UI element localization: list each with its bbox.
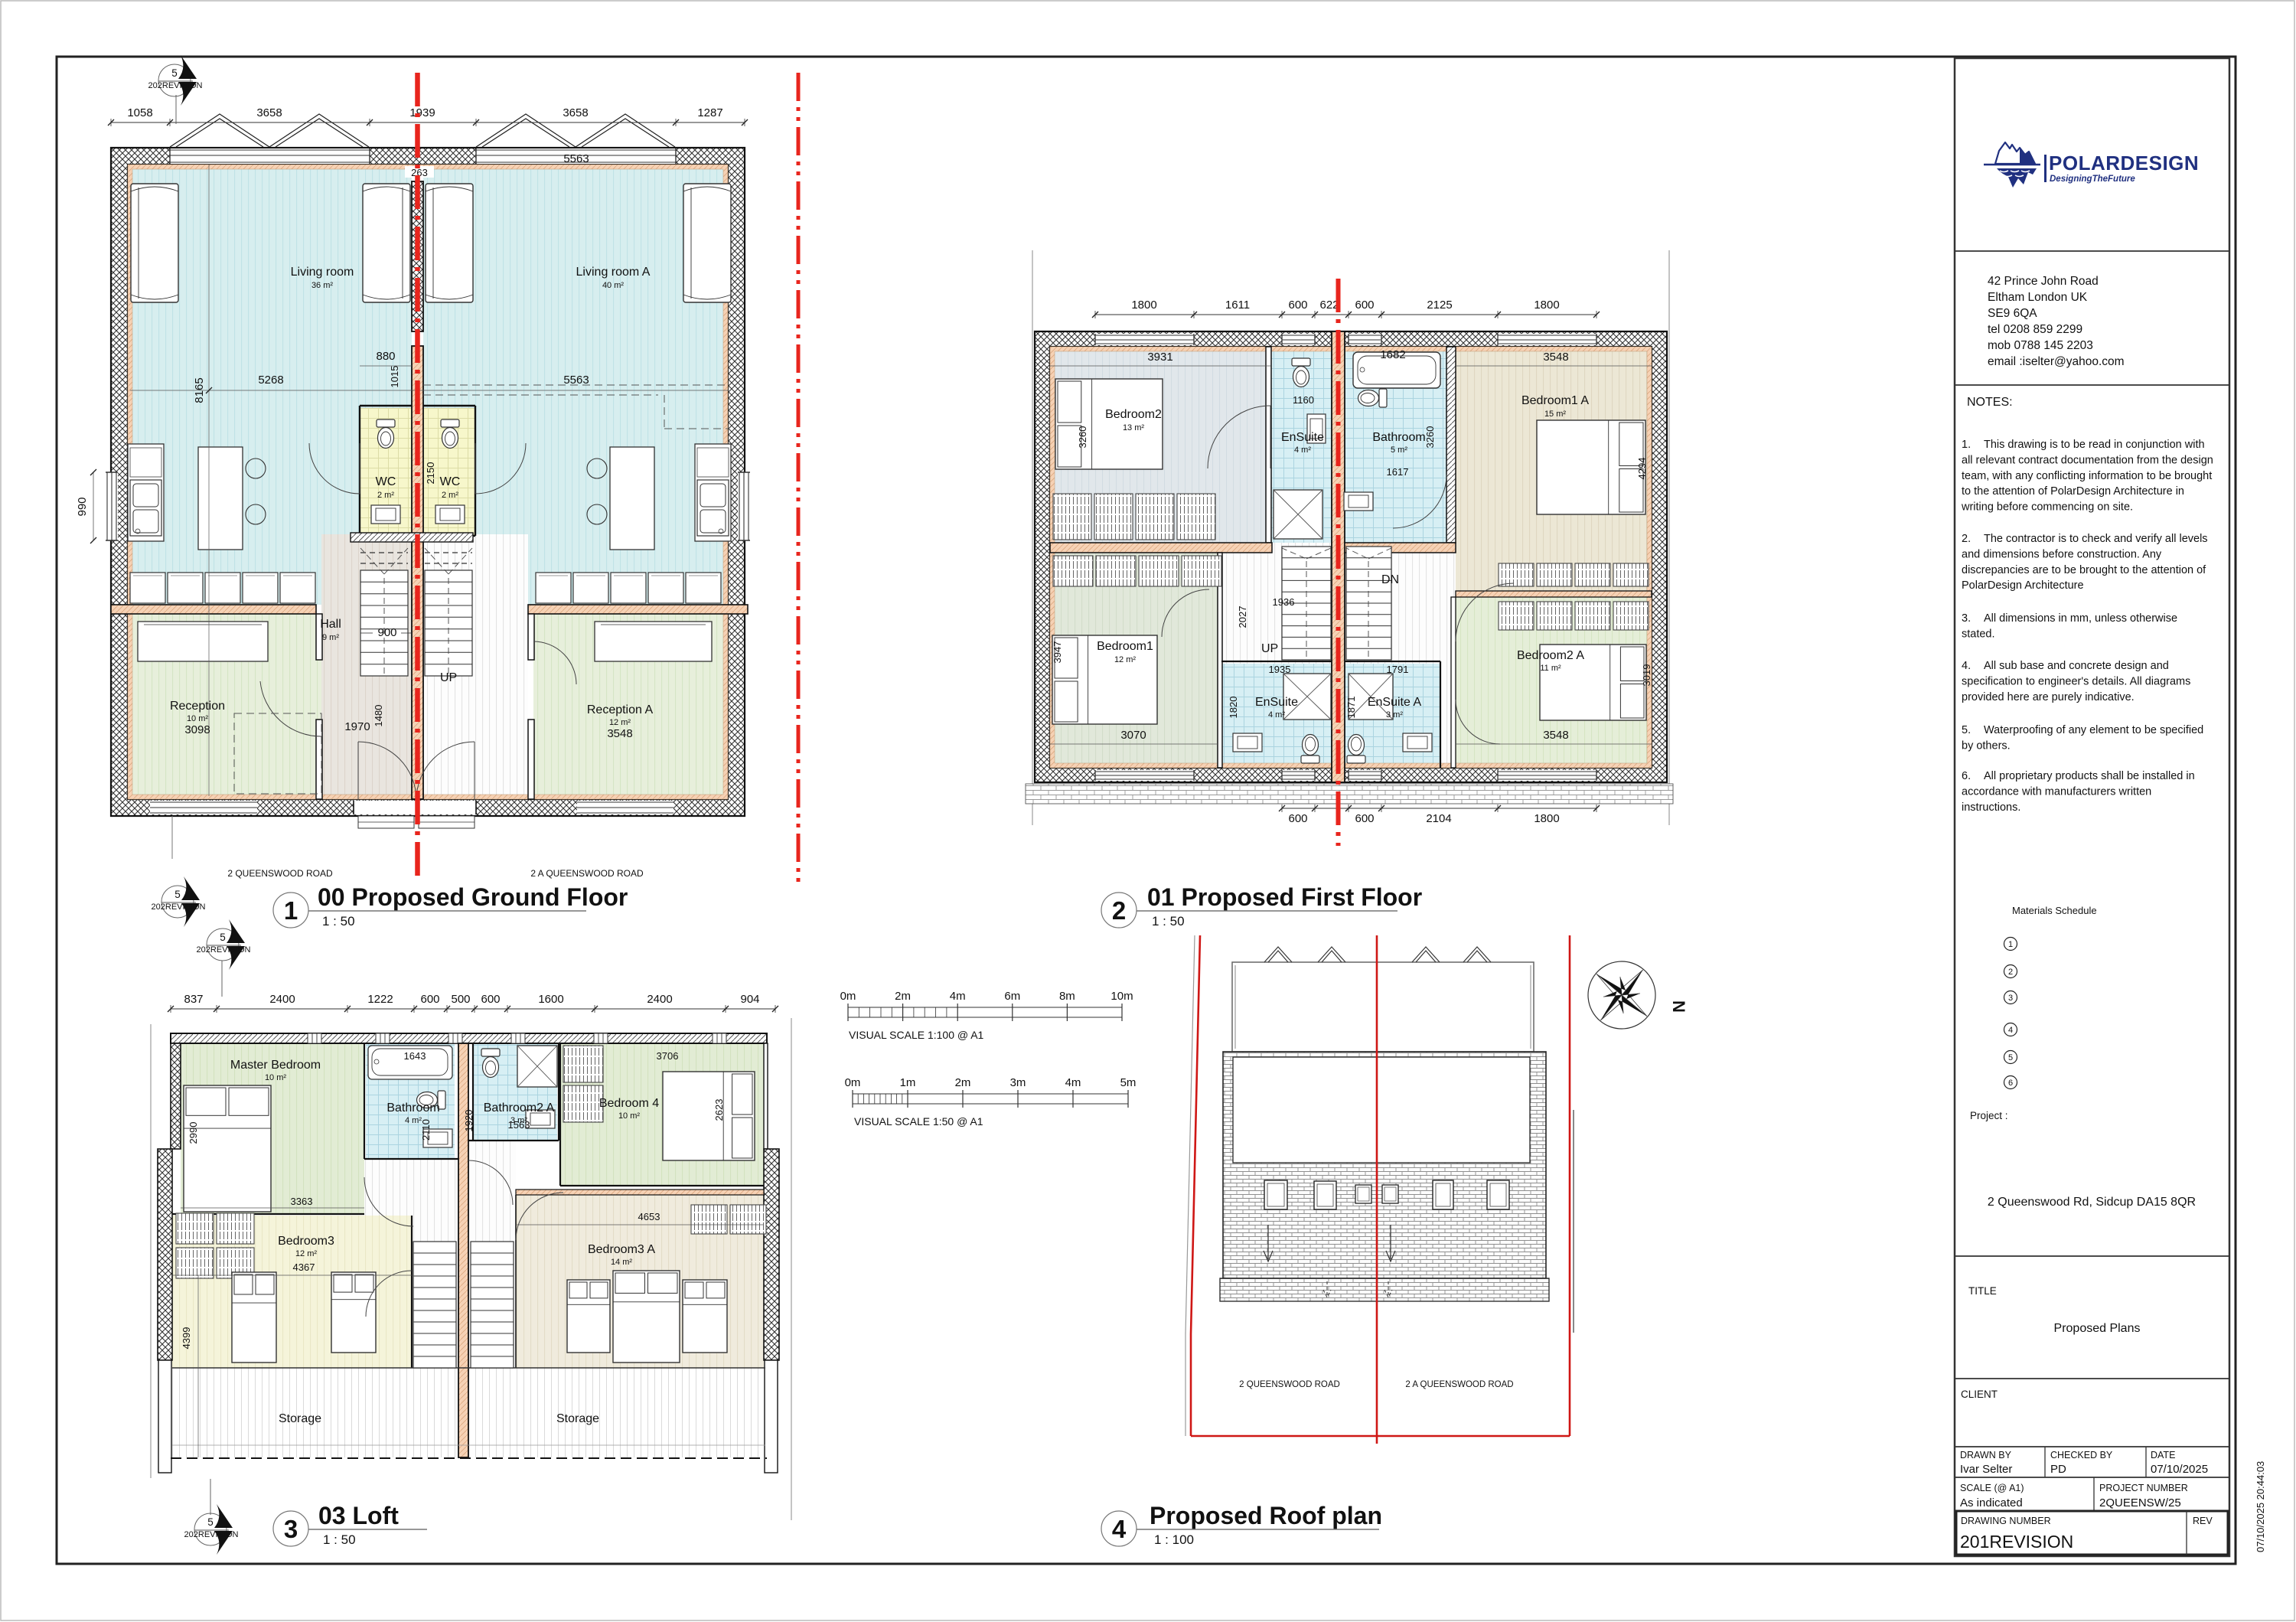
- svg-text:DRAWING NUMBER: DRAWING NUMBER: [1961, 1516, 2051, 1526]
- svg-text:3658: 3658: [563, 106, 588, 119]
- svg-text:2400: 2400: [647, 993, 672, 1006]
- svg-text:by others.: by others.: [1962, 739, 2011, 752]
- svg-text:Bedroom 4: Bedroom 4: [599, 1097, 659, 1110]
- svg-text:5 m²: 5 m²: [1391, 445, 1407, 455]
- svg-text:CLIENT: CLIENT: [1961, 1389, 1998, 1400]
- svg-text:10 m²: 10 m²: [187, 714, 208, 723]
- svg-text:writing before commencing on s: writing before commencing on site.: [1961, 501, 2133, 514]
- svg-text:3947: 3947: [1052, 641, 1063, 664]
- svg-text:Reception: Reception: [170, 700, 225, 713]
- svg-text:40 m²: 40 m²: [602, 281, 624, 290]
- svg-text:All dimensions in mm, unless o: All dimensions in mm, unless otherwise: [1984, 612, 2177, 625]
- svg-text:5: 5: [2008, 1053, 2013, 1062]
- svg-text:4399: 4399: [181, 1327, 192, 1349]
- svg-text:1: 1: [2008, 940, 2013, 949]
- svg-text:and dimensions before construc: and dimensions before construction. Any: [1962, 548, 2162, 560]
- svg-text:4: 4: [2008, 1026, 2013, 1035]
- svg-text:Proposed Plans: Proposed Plans: [2054, 1322, 2141, 1335]
- svg-text:1 : 50: 1 : 50: [323, 1532, 356, 1547]
- svg-text:Bathroom: Bathroom: [386, 1101, 439, 1115]
- svg-text:4 m²: 4 m²: [1268, 710, 1285, 720]
- svg-text:POLARDESIGN: POLARDESIGN: [2049, 152, 2199, 175]
- svg-text:3.: 3.: [1962, 612, 1971, 625]
- svg-text:Waterproofing of any element t: Waterproofing of any element to be speci…: [1984, 724, 2203, 736]
- svg-text:Ivar Selter: Ivar Selter: [1960, 1463, 2012, 1476]
- svg-text:6.: 6.: [1962, 770, 1971, 782]
- svg-text:880: 880: [376, 350, 395, 363]
- svg-text:3260: 3260: [1077, 426, 1088, 449]
- svg-text:SCALE (@ A1): SCALE (@ A1): [1960, 1483, 2024, 1493]
- svg-text:1: 1: [284, 896, 298, 925]
- svg-text:CHECKED BY: CHECKED BY: [2050, 1450, 2113, 1460]
- svg-text:3019: 3019: [1641, 664, 1652, 687]
- svg-text:11 m²: 11 m²: [1540, 664, 1561, 673]
- svg-text:2623: 2623: [713, 1099, 725, 1121]
- svg-text:01 Proposed First Floor: 01 Proposed First Floor: [1147, 883, 1422, 911]
- svg-text:Proposed Roof plan: Proposed Roof plan: [1150, 1502, 1382, 1529]
- svg-text:5m: 5m: [1120, 1076, 1137, 1089]
- svg-text:2125: 2125: [1427, 299, 1452, 312]
- svg-text:tel 0208 859 2299: tel 0208 859 2299: [1988, 323, 2082, 336]
- svg-text:Bedroom3 A: Bedroom3 A: [588, 1243, 655, 1256]
- svg-text:600: 600: [420, 993, 439, 1006]
- svg-text:07/10/2025 20:44:03: 07/10/2025 20:44:03: [2255, 1461, 2266, 1552]
- svg-text:Storage: Storage: [279, 1412, 321, 1425]
- svg-text:3260: 3260: [1424, 426, 1436, 449]
- svg-text:4653: 4653: [638, 1211, 660, 1222]
- svg-text:All sub base and concrete desi: All sub base and concrete design and: [1984, 660, 2169, 672]
- svg-text:1643: 1643: [404, 1050, 426, 1062]
- svg-text:202REVISION: 202REVISION: [197, 945, 251, 955]
- svg-text:VISUAL SCALE 1:100 @ A1: VISUAL SCALE 1:100 @ A1: [849, 1029, 984, 1041]
- svg-text:5563: 5563: [563, 374, 589, 387]
- svg-text:1970: 1970: [344, 720, 370, 733]
- svg-text:This drawing is to be read in: This drawing is to be read in conjunctio…: [1984, 439, 2205, 451]
- svg-text:DN: DN: [1381, 573, 1399, 586]
- svg-text:NOTES:: NOTES:: [1967, 396, 2013, 409]
- svg-text:5.: 5.: [1962, 724, 1971, 736]
- svg-text:1800: 1800: [1534, 812, 1559, 825]
- svg-text:6: 6: [2008, 1079, 2013, 1088]
- svg-text:2 QUEENSWOOD ROAD: 2 QUEENSWOOD ROAD: [1239, 1380, 1340, 1389]
- svg-text:Storage: Storage: [556, 1412, 599, 1425]
- svg-text:2150: 2150: [425, 462, 436, 485]
- svg-text:10 m²: 10 m²: [265, 1073, 286, 1082]
- svg-text:12 m²: 12 m²: [1114, 655, 1136, 664]
- svg-text:4294: 4294: [1636, 458, 1648, 480]
- svg-text:1287: 1287: [697, 106, 722, 119]
- svg-text:3548: 3548: [1543, 729, 1568, 742]
- svg-text:4m: 4m: [950, 990, 966, 1003]
- svg-text:14 m²: 14 m²: [611, 1258, 632, 1267]
- svg-text:provided here are purely indic: provided here are purely indicative.: [1962, 691, 2135, 703]
- svg-text:202REVISION: 202REVISION: [184, 1530, 239, 1539]
- svg-text:1820: 1820: [1228, 697, 1239, 719]
- svg-text:2.: 2.: [1962, 533, 1971, 545]
- svg-text:5563: 5563: [563, 152, 589, 165]
- svg-text:3: 3: [2008, 994, 2013, 1003]
- svg-text:990: 990: [76, 497, 89, 516]
- svg-text:8165: 8165: [193, 377, 206, 403]
- svg-text:2m: 2m: [895, 990, 911, 1003]
- svg-text:EnSuite A: EnSuite A: [1368, 696, 1422, 709]
- svg-text:201REVISION: 201REVISION: [1960, 1532, 2073, 1552]
- svg-text:Bedroom1 A: Bedroom1 A: [1521, 394, 1589, 407]
- svg-text:N: N: [1669, 1000, 1688, 1013]
- svg-text:WC: WC: [440, 475, 461, 488]
- svg-text:2104: 2104: [1426, 812, 1451, 825]
- svg-text:team, with any conflicting inf: team, with any conflicting information t…: [1962, 470, 2212, 482]
- svg-text:1 : 100: 1 : 100: [1154, 1532, 1194, 1547]
- svg-text:0m: 0m: [845, 1076, 861, 1089]
- svg-text:1935: 1935: [1269, 664, 1291, 675]
- svg-text:EnSuite: EnSuite: [1281, 431, 1324, 444]
- svg-text:10m: 10m: [1110, 990, 1133, 1003]
- svg-text:2 Queenswood Rd, Sidcup DA15 8: 2 Queenswood Rd, Sidcup DA15 8QR: [1988, 1196, 2196, 1209]
- svg-text:5: 5: [171, 67, 178, 79]
- svg-text:2: 2: [2008, 968, 2013, 977]
- svg-text:3548: 3548: [1543, 351, 1568, 364]
- svg-text:discrepancies are to be brough: discrepancies are to be brought to the a…: [1962, 564, 2206, 576]
- svg-text:REV: REV: [2193, 1516, 2213, 1526]
- svg-text:00 Proposed Ground Floor: 00 Proposed Ground Floor: [318, 883, 628, 911]
- svg-text:42 Prince John Road: 42 Prince John Road: [1988, 275, 2099, 288]
- svg-text:1920: 1920: [463, 1110, 475, 1132]
- svg-text:4 m²: 4 m²: [405, 1116, 422, 1125]
- svg-text:4: 4: [1112, 1515, 1127, 1543]
- svg-text:WC: WC: [376, 475, 396, 488]
- svg-text:SE9 6QA: SE9 6QA: [1988, 307, 2037, 320]
- svg-text:Bathroom2 A: Bathroom2 A: [484, 1101, 555, 1115]
- svg-text:1800: 1800: [1131, 299, 1156, 312]
- svg-text:3548: 3548: [607, 727, 632, 740]
- svg-text:3658: 3658: [256, 106, 282, 119]
- svg-text:4 m²: 4 m²: [1294, 445, 1311, 455]
- svg-text:0m: 0m: [840, 990, 856, 1003]
- svg-text:2990: 2990: [188, 1122, 199, 1144]
- svg-text:9 m²: 9 m²: [322, 633, 339, 642]
- svg-text:As indicated: As indicated: [1960, 1496, 2023, 1509]
- svg-text:8m: 8m: [1059, 990, 1075, 1003]
- svg-text:1222: 1222: [367, 993, 393, 1006]
- svg-text:12 m²: 12 m²: [295, 1249, 317, 1258]
- svg-text:DRAWN BY: DRAWN BY: [1960, 1450, 2012, 1460]
- svg-text:The contractor is to check and: The contractor is to check and verify al…: [1984, 533, 2208, 545]
- svg-text:email :iselter@yahoo.com: email :iselter@yahoo.com: [1988, 355, 2125, 368]
- svg-text:2 m²: 2 m²: [377, 491, 394, 500]
- svg-text:Living room: Living room: [291, 266, 354, 279]
- svg-text:1791: 1791: [1387, 664, 1409, 675]
- svg-text:instructions.: instructions.: [1962, 801, 2020, 814]
- svg-text:5: 5: [174, 889, 181, 900]
- svg-text:1480: 1480: [373, 705, 384, 727]
- svg-text:1015: 1015: [389, 366, 400, 388]
- svg-text:1611: 1611: [1225, 299, 1250, 312]
- svg-text:1871: 1871: [1345, 697, 1357, 719]
- svg-text:1 : 50: 1 : 50: [1152, 914, 1185, 928]
- svg-text:all relevant contract document: all relevant contract documentation from…: [1962, 454, 2213, 466]
- svg-text:EnSuite: EnSuite: [1255, 696, 1298, 709]
- svg-text:Materials Schedule: Materials Schedule: [2012, 905, 2097, 916]
- svg-text:600: 600: [1288, 812, 1307, 825]
- svg-text:202REVISION: 202REVISION: [152, 902, 206, 912]
- svg-text:All proprietary products shall: All proprietary products shall be instal…: [1984, 770, 2195, 782]
- svg-text:03 Loft: 03 Loft: [318, 1502, 399, 1529]
- svg-text:3070: 3070: [1120, 729, 1146, 742]
- svg-text:15 m²: 15 m²: [1544, 410, 1566, 419]
- svg-text:5: 5: [220, 932, 226, 943]
- svg-text:837: 837: [184, 993, 203, 1006]
- svg-text:Reception A: Reception A: [587, 703, 654, 716]
- svg-text:3 m²: 3 m²: [1386, 710, 1403, 720]
- svg-text:1 : 50: 1 : 50: [322, 914, 355, 928]
- svg-text:1682: 1682: [1380, 348, 1405, 361]
- svg-text:2m: 2m: [955, 1076, 971, 1089]
- svg-text:3 m²: 3 m²: [510, 1116, 527, 1125]
- svg-text:VISUAL SCALE 1:50 @ A1: VISUAL SCALE 1:50 @ A1: [854, 1115, 983, 1128]
- svg-text:202REVISION: 202REVISION: [148, 81, 203, 90]
- svg-text:600: 600: [1355, 299, 1374, 312]
- svg-text:2 QUEENSWOOD ROAD: 2 QUEENSWOOD ROAD: [227, 868, 333, 879]
- svg-text:Bedroom3: Bedroom3: [278, 1235, 334, 1248]
- svg-text:600: 600: [1288, 299, 1307, 312]
- svg-text:3931: 3931: [1147, 351, 1172, 364]
- svg-text:2: 2: [1112, 896, 1126, 925]
- svg-text:10 m²: 10 m²: [618, 1111, 640, 1121]
- svg-text:Living room A: Living room A: [576, 266, 651, 279]
- svg-text:DATE: DATE: [2151, 1450, 2175, 1460]
- svg-text:DesigningTheFuture: DesigningTheFuture: [2050, 175, 2135, 184]
- svg-text:4367: 4367: [293, 1261, 315, 1273]
- svg-text:2QUEENSW/25: 2QUEENSW/25: [2099, 1496, 2181, 1509]
- svg-text:PD: PD: [2050, 1463, 2066, 1476]
- svg-text:stated.: stated.: [1962, 628, 1995, 640]
- svg-text:Eltham London UK: Eltham London UK: [1988, 291, 2088, 304]
- svg-text:PolarDesign Architecture: PolarDesign Architecture: [1962, 579, 2084, 592]
- svg-text:Hall: Hall: [320, 618, 341, 631]
- svg-text:600: 600: [1355, 812, 1374, 825]
- svg-text:Bathroom: Bathroom: [1372, 431, 1425, 444]
- svg-text:UP: UP: [440, 671, 457, 684]
- svg-text:1058: 1058: [127, 106, 152, 119]
- svg-text:13 m²: 13 m²: [1123, 423, 1144, 432]
- svg-text:1.: 1.: [1962, 439, 1971, 451]
- svg-text:6m: 6m: [1004, 990, 1020, 1003]
- svg-text:UP: UP: [1261, 642, 1278, 655]
- svg-text:Bedroom1: Bedroom1: [1097, 640, 1153, 653]
- svg-text:600: 600: [481, 993, 500, 1006]
- svg-text:Project :: Project :: [1970, 1110, 2008, 1121]
- svg-text:3m: 3m: [1010, 1076, 1026, 1089]
- svg-text:2 m²: 2 m²: [442, 491, 458, 500]
- svg-text:2400: 2400: [269, 993, 295, 1006]
- svg-text:900: 900: [377, 626, 396, 639]
- svg-text:2027: 2027: [1237, 606, 1248, 628]
- svg-text:accordance with manufacturers: accordance with manufacturers written: [1962, 785, 2151, 798]
- svg-text:TITLE: TITLE: [1968, 1285, 1997, 1297]
- svg-text:1939: 1939: [409, 106, 435, 119]
- svg-text:904: 904: [740, 993, 759, 1006]
- svg-text:mob 0788 145 2203: mob 0788 145 2203: [1988, 339, 2093, 352]
- svg-text:3706: 3706: [657, 1050, 679, 1062]
- svg-text:4m: 4m: [1065, 1076, 1081, 1089]
- svg-text:to the attention of PolarDesig: to the attention of PolarDesign Architec…: [1962, 485, 2184, 498]
- svg-text:Master Bedroom: Master Bedroom: [230, 1059, 321, 1072]
- svg-text:4.: 4.: [1962, 660, 1971, 672]
- svg-text:1936: 1936: [1273, 596, 1295, 608]
- svg-text:2110: 2110: [420, 1119, 432, 1141]
- svg-text:1160: 1160: [1293, 394, 1314, 406]
- svg-text:1600: 1600: [538, 993, 563, 1006]
- svg-text:36 m²: 36 m²: [311, 281, 333, 290]
- svg-text:5: 5: [207, 1516, 214, 1528]
- svg-text:3098: 3098: [184, 723, 210, 736]
- svg-text:1617: 1617: [1387, 466, 1409, 478]
- svg-text:07/10/2025: 07/10/2025: [2151, 1463, 2208, 1476]
- svg-text:12 m²: 12 m²: [609, 718, 631, 727]
- svg-text:500: 500: [451, 993, 470, 1006]
- svg-text:5268: 5268: [258, 374, 283, 387]
- svg-text:Bedroom2: Bedroom2: [1105, 408, 1162, 421]
- svg-text:1800: 1800: [1534, 299, 1559, 312]
- svg-text:Bedroom2 A: Bedroom2 A: [1517, 649, 1584, 662]
- svg-text:2 A QUEENSWOOD ROAD: 2 A QUEENSWOOD ROAD: [530, 868, 644, 879]
- svg-text:3363: 3363: [291, 1196, 313, 1207]
- svg-text:2 A QUEENSWOOD ROAD: 2 A QUEENSWOOD ROAD: [1405, 1380, 1513, 1389]
- svg-text:3: 3: [284, 1515, 298, 1543]
- svg-text:PROJECT NUMBER: PROJECT NUMBER: [2099, 1483, 2188, 1493]
- svg-text:specification to engineer's de: specification to engineer's details. All…: [1962, 675, 2190, 687]
- svg-text:1m: 1m: [900, 1076, 916, 1089]
